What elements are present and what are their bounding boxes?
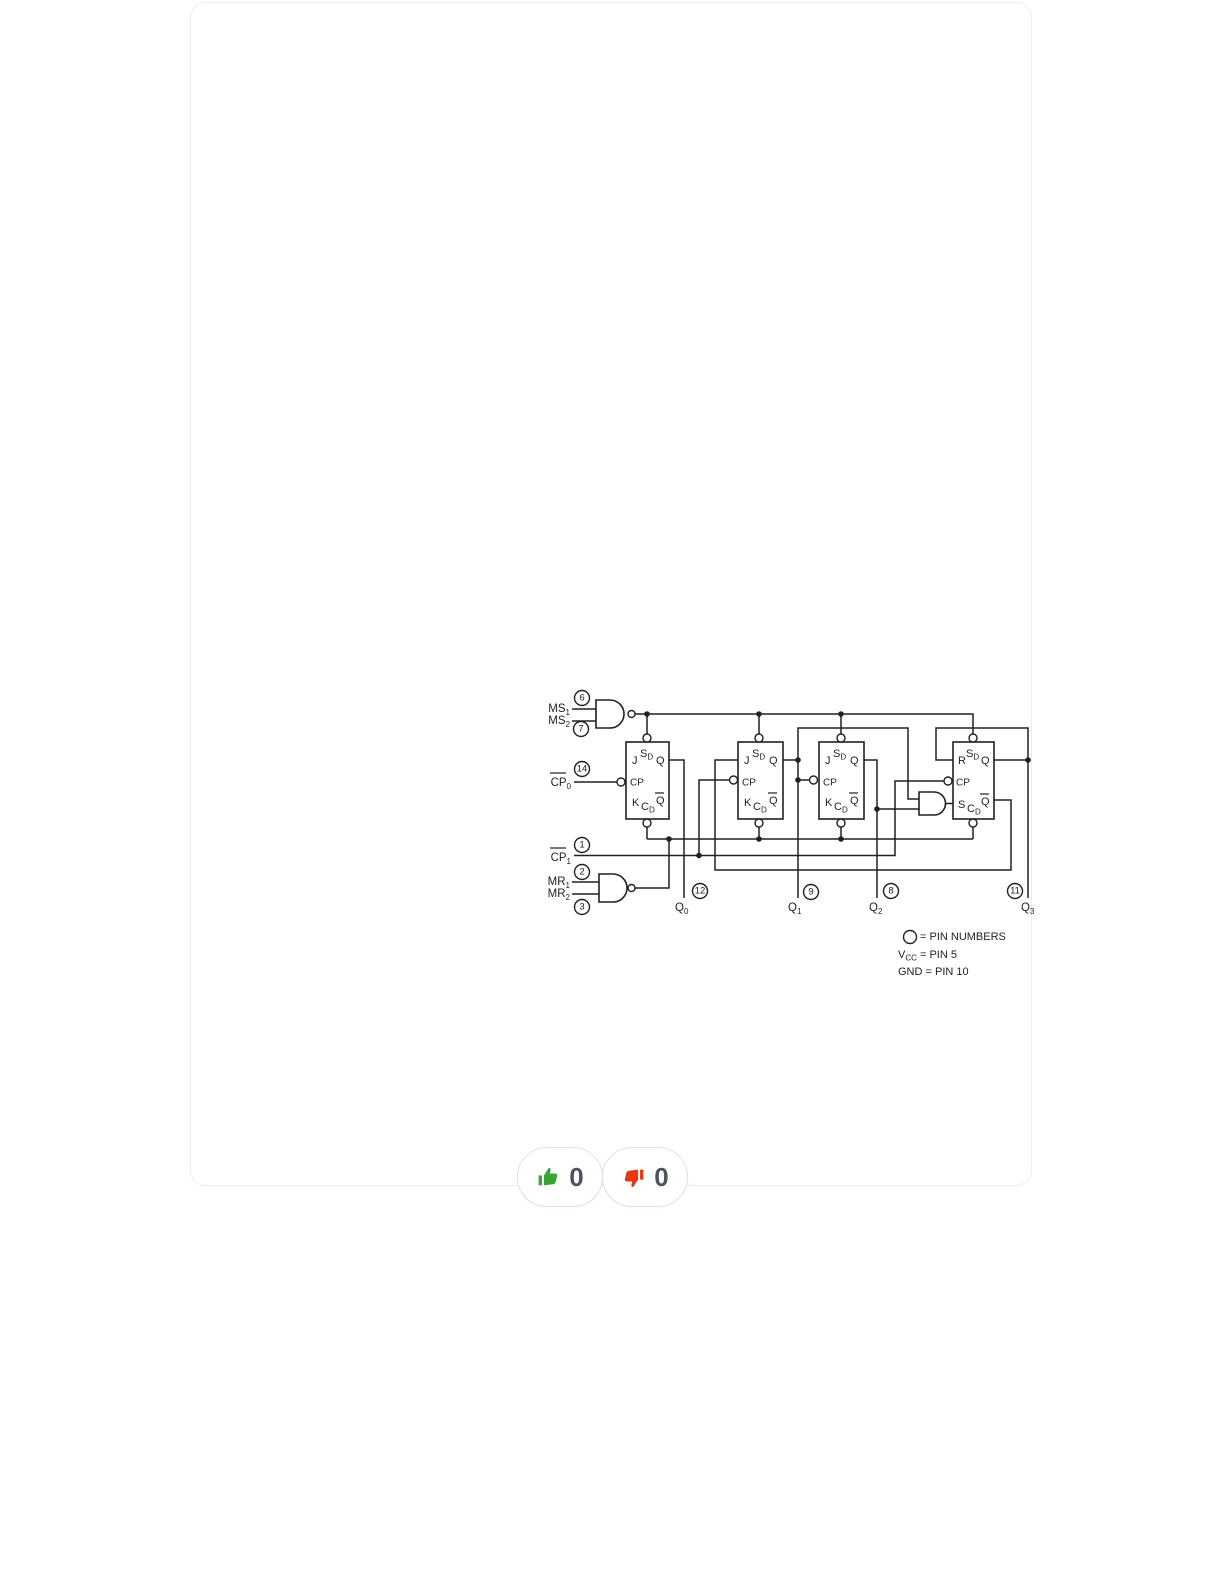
legend-vcc: VCC = PIN 5 bbox=[898, 949, 957, 962]
svg-text:Q: Q bbox=[850, 755, 859, 767]
svg-text:SD: SD bbox=[640, 748, 653, 761]
svg-text:CD: CD bbox=[641, 801, 655, 814]
pin-9: 9 bbox=[808, 887, 813, 898]
thumbs-down-icon bbox=[621, 1165, 646, 1190]
pin-12: 12 bbox=[695, 886, 706, 897]
svg-text:Q: Q bbox=[981, 755, 990, 767]
svg-text:Q: Q bbox=[656, 795, 665, 807]
thumbs-up-icon bbox=[536, 1165, 561, 1190]
content-card: 6 7 14 1 2 3 12 9 8 11 bbox=[190, 2, 1032, 1186]
svg-text:R: R bbox=[958, 755, 966, 767]
q3-label: Q3 bbox=[1021, 902, 1035, 916]
cp0-label: CP0 bbox=[551, 777, 572, 791]
pin-7: 7 bbox=[578, 724, 583, 735]
q0-label: Q0 bbox=[675, 902, 689, 916]
mr-nand-gate bbox=[599, 874, 635, 902]
ms-nand-gate bbox=[596, 700, 635, 728]
pin-3: 3 bbox=[579, 902, 584, 913]
thumbs-down-count: 0 bbox=[654, 1164, 668, 1190]
svg-text:Q: Q bbox=[981, 796, 990, 808]
svg-text:CP: CP bbox=[742, 778, 756, 789]
svg-text:J: J bbox=[825, 755, 831, 767]
svg-text:SD: SD bbox=[752, 748, 765, 761]
ff4-labels: R SD Q CP S CD Q bbox=[956, 748, 990, 816]
svg-text:Q: Q bbox=[769, 795, 778, 807]
svg-text:Q: Q bbox=[850, 795, 859, 807]
thumbs-up-button[interactable]: 0 bbox=[517, 1147, 603, 1207]
pin-11: 11 bbox=[1010, 886, 1020, 897]
legend-pin-circle bbox=[904, 931, 917, 944]
svg-text:CD: CD bbox=[753, 801, 767, 814]
pin-14: 14 bbox=[577, 764, 588, 775]
mr2-label: MR2 bbox=[548, 888, 571, 902]
svg-text:CD: CD bbox=[967, 803, 981, 816]
logic-diagram: 6 7 14 1 2 3 12 9 8 11 bbox=[531, 663, 1076, 983]
ms2-label: MS2 bbox=[548, 715, 570, 729]
and-gate bbox=[919, 792, 946, 815]
vote-buttons: 0 0 bbox=[517, 1147, 688, 1207]
svg-text:CD: CD bbox=[834, 801, 848, 814]
svg-text:J: J bbox=[744, 755, 750, 767]
pin-2: 2 bbox=[579, 867, 584, 878]
svg-text:J: J bbox=[632, 755, 638, 767]
svg-text:Q: Q bbox=[656, 755, 665, 767]
legend-pin-note: = PIN NUMBERS bbox=[920, 931, 1006, 943]
ff1-labels: J SD Q CP K CD Q bbox=[630, 748, 665, 814]
q1-label: Q1 bbox=[788, 902, 802, 916]
pin-1: 1 bbox=[579, 840, 584, 851]
svg-text:CP: CP bbox=[630, 778, 644, 789]
inverter-bubble bbox=[628, 711, 635, 718]
svg-text:S: S bbox=[958, 799, 965, 811]
pin-6: 6 bbox=[579, 693, 584, 704]
svg-text:SD: SD bbox=[833, 748, 846, 761]
cp1-label: CP1 bbox=[551, 852, 572, 866]
q2-label: Q2 bbox=[869, 902, 883, 916]
inverter-bubble bbox=[628, 885, 635, 892]
counter-logic-diagram-svg: 6 7 14 1 2 3 12 9 8 11 bbox=[531, 663, 1076, 983]
thumbs-up-count: 0 bbox=[569, 1164, 583, 1190]
input-labels: MS1 MS2 CP0 CP1 MR1 MR2 bbox=[548, 703, 572, 902]
svg-text:Q: Q bbox=[769, 755, 778, 767]
ff2-labels: J SD Q CP K CD Q bbox=[742, 748, 778, 814]
pin-8: 8 bbox=[888, 886, 893, 897]
ff3-labels: J SD Q CP K CD Q bbox=[823, 748, 859, 814]
svg-text:K: K bbox=[632, 797, 640, 809]
legend-gnd: GND = PIN 10 bbox=[898, 966, 969, 978]
svg-text:SD: SD bbox=[966, 748, 979, 761]
svg-text:CP: CP bbox=[956, 778, 970, 789]
svg-text:K: K bbox=[825, 797, 833, 809]
svg-text:K: K bbox=[744, 797, 752, 809]
output-labels: Q0 Q1 Q2 Q3 bbox=[675, 902, 1035, 916]
legend: = PIN NUMBERS VCC = PIN 5 GND = PIN 10 bbox=[898, 931, 1006, 979]
thumbs-down-button[interactable]: 0 bbox=[602, 1147, 688, 1207]
svg-text:CP: CP bbox=[823, 778, 837, 789]
